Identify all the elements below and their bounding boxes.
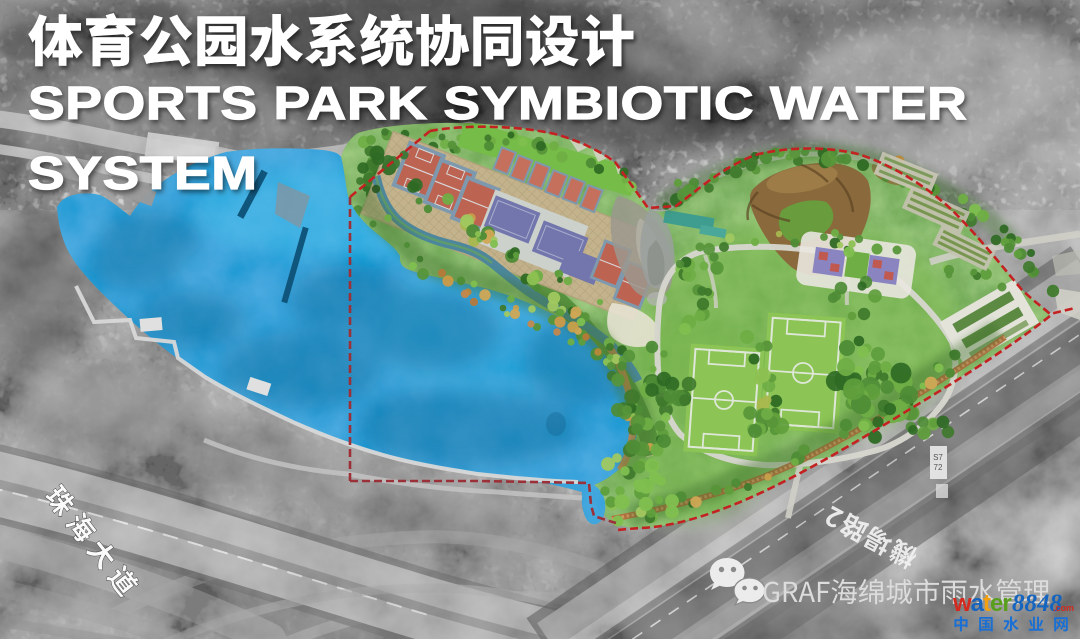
svg-text:water: water <box>952 590 1011 617</box>
svg-text:S7: S7 <box>933 453 943 462</box>
svg-text:72: 72 <box>934 463 943 472</box>
svg-text:.com: .com <box>1053 603 1074 613</box>
